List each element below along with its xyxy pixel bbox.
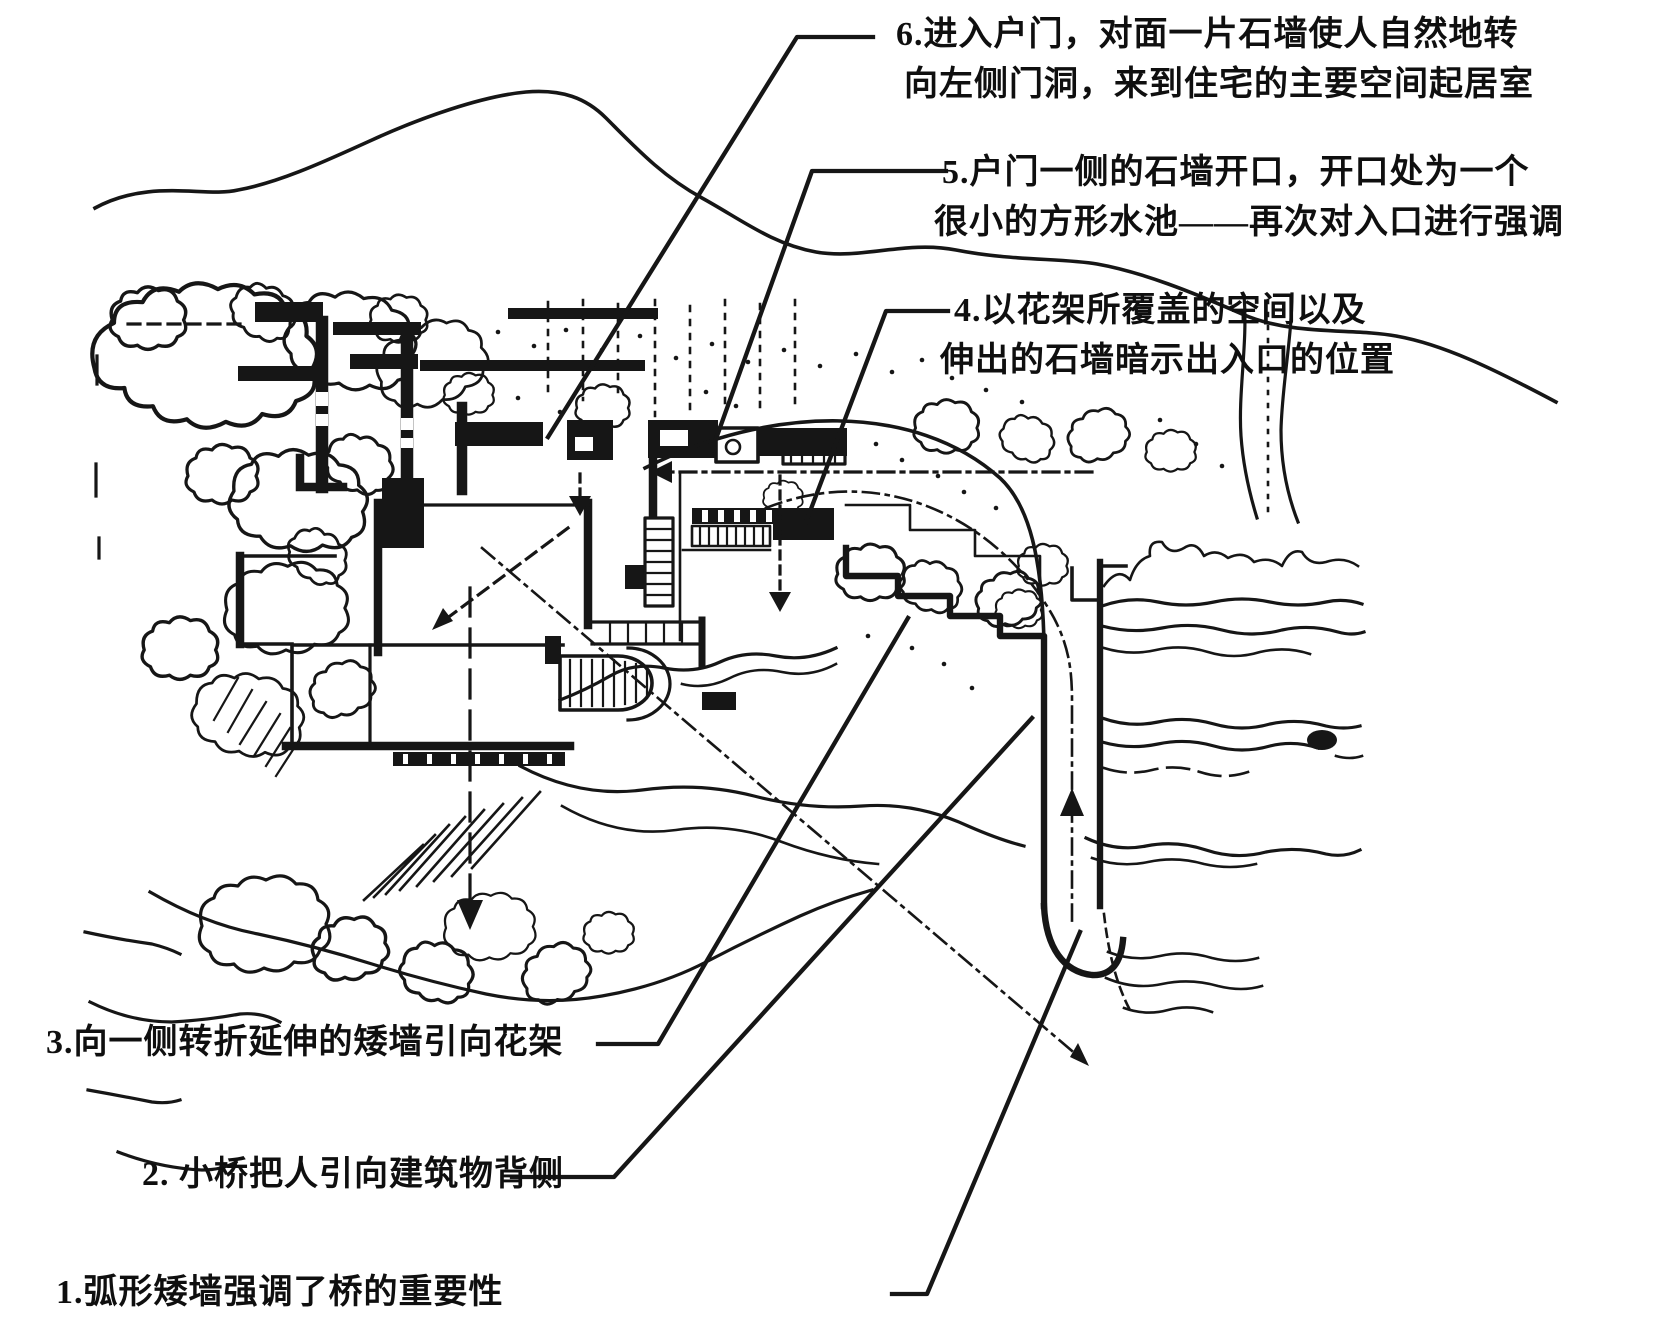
leader-4	[806, 311, 948, 522]
annotation-note-4: 4.以花架所覆盖的空间以及 伸出的石墙暗示出入口的位置	[940, 286, 1395, 386]
annotation-text: 6.进入户门，对面一片石墙使人自然地转	[896, 10, 1534, 60]
annotation-text: 4.以花架所覆盖的空间以及	[940, 286, 1395, 336]
annotation-text: 2. 小桥把人引向建筑物背侧	[142, 1150, 564, 1200]
annotation-text: 向左侧门洞，来到住宅的主要空间起居室	[896, 60, 1534, 110]
leader-1	[892, 932, 1080, 1294]
annotation-note-2: 2. 小桥把人引向建筑物背侧	[142, 1150, 564, 1200]
leader-6	[548, 37, 873, 437]
annotation-text: 5.户门一侧的石墙开口，开口处为一个	[934, 148, 1564, 198]
annotation-note-5: 5.户门一侧的石墙开口，开口处为一个 很小的方形水池——再次对入口进行强调	[934, 148, 1564, 248]
figure-page: 6.进入户门，对面一片石墙使人自然地转 向左侧门洞，来到住宅的主要空间起居室 5…	[0, 0, 1653, 1319]
plunge-pool	[560, 648, 670, 720]
annotation-note-3: 3.向一侧转折延伸的矮墙引向花架	[46, 1018, 564, 1068]
arc-wall	[1044, 906, 1123, 975]
waterfall-hatch	[214, 678, 540, 900]
annotation-note-6: 6.进入户门，对面一片石墙使人自然地转 向左侧门洞，来到住宅的主要空间起居室	[896, 10, 1534, 110]
annotation-text: 3.向一侧转折延伸的矮墙引向花架	[46, 1018, 564, 1068]
annotation-text: 很小的方形水池——再次对入口进行强调	[934, 198, 1564, 248]
stream-right-of-bridge	[1086, 542, 1364, 1013]
annotation-note-1: 1.弧形矮墙强调了桥的重要性	[56, 1268, 504, 1318]
stream-banks	[85, 648, 1024, 1170]
circulation-arrows	[432, 300, 1092, 1066]
stair-hatch	[645, 518, 673, 606]
annotation-text: 1.弧形矮墙强调了桥的重要性	[56, 1268, 504, 1318]
pergola-trellis	[683, 508, 834, 550]
annotation-text: 伸出的石墙暗示出入口的位置	[940, 336, 1395, 386]
